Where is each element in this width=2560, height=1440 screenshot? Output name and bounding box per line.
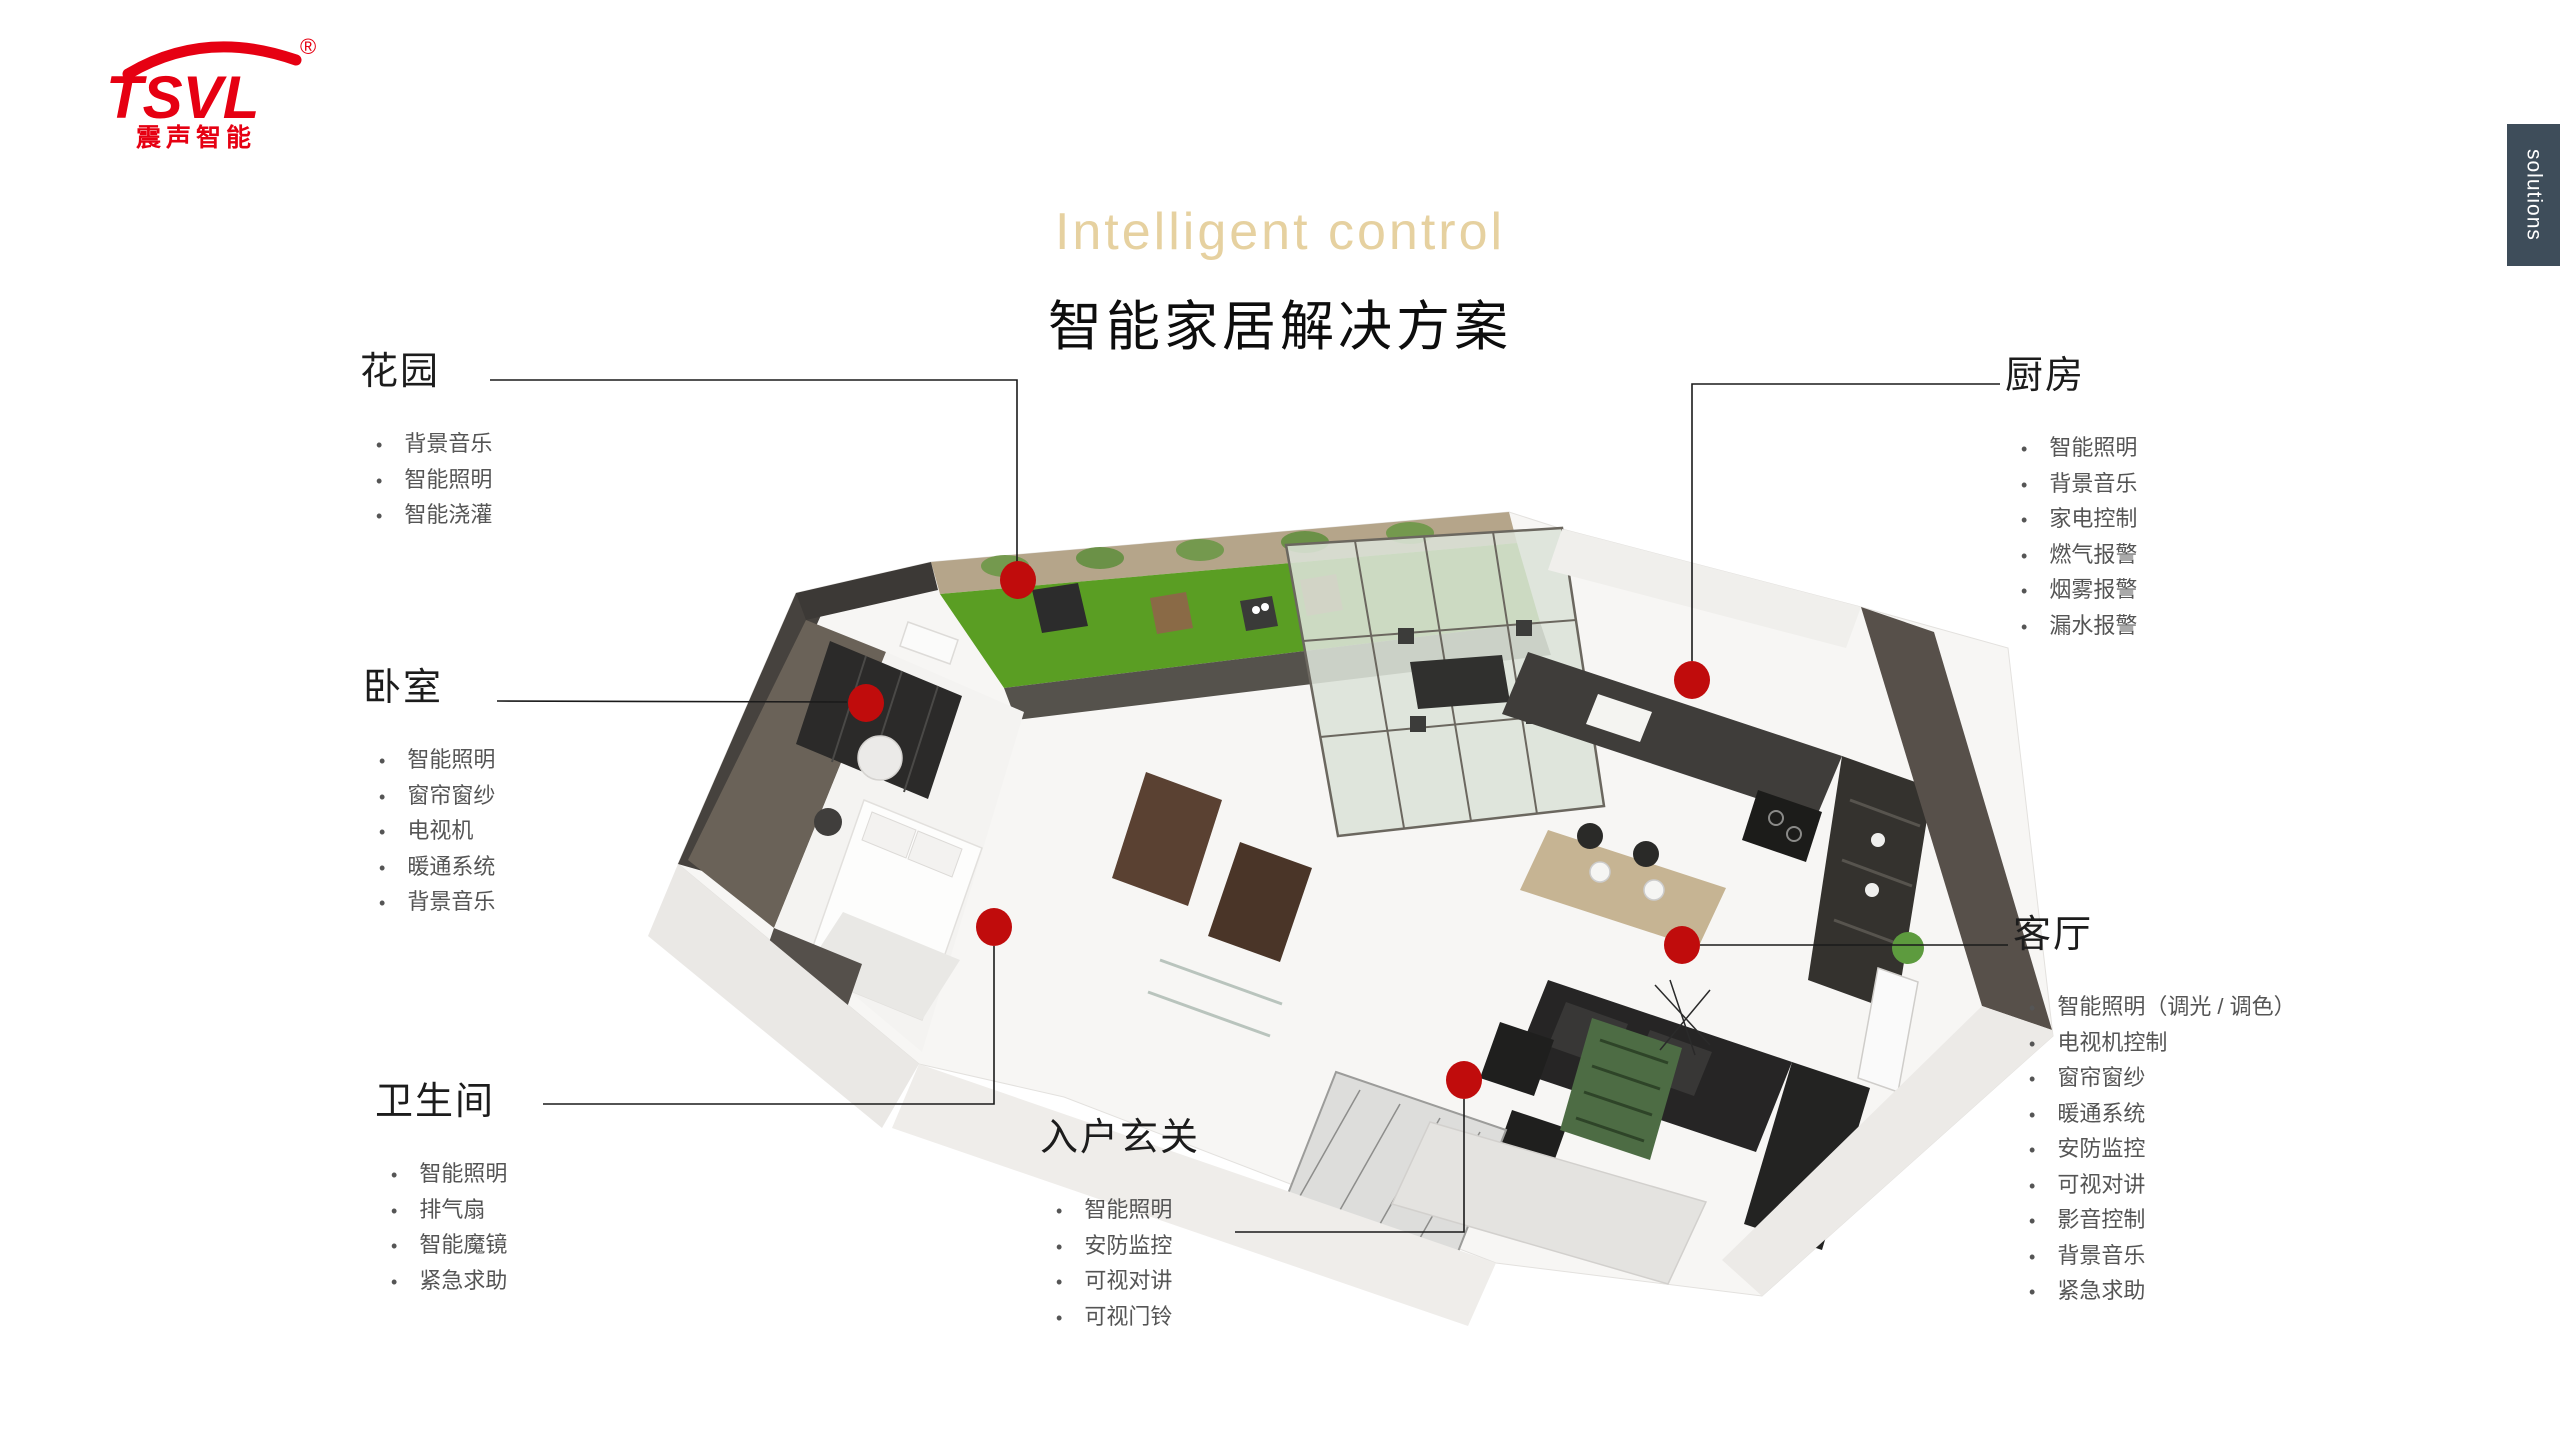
feature-label: 电视机控制 <box>2057 1026 2167 1060</box>
bullet-icon: • <box>2021 504 2027 538</box>
feature-label: 窗帘窗纱 <box>2057 1061 2145 1095</box>
section-bedroom: 卧室 •智能照明•窗帘窗纱•电视机•暖通系统•背景音乐 <box>363 665 495 921</box>
feature-item: •智能照明 <box>391 1157 507 1193</box>
bullet-icon: • <box>2021 433 2027 467</box>
bullet-icon: • <box>391 1159 397 1193</box>
bullet-icon: • <box>391 1266 397 1300</box>
bullet-icon: • <box>2021 469 2027 503</box>
feature-label: 背景音乐 <box>2057 1239 2145 1273</box>
feature-label: 电视机 <box>407 814 473 848</box>
section-garden-title: 花园 <box>360 349 492 395</box>
feature-label: 智能照明 <box>419 1157 507 1191</box>
feature-item: •紧急求助 <box>391 1264 507 1300</box>
bullet-icon: • <box>2029 1099 2035 1133</box>
bullet-icon: • <box>376 500 382 534</box>
feature-label: 智能照明 <box>407 743 495 777</box>
feature-item: •暖通系统 <box>379 850 495 886</box>
feature-label: 可视门铃 <box>1084 1300 1172 1334</box>
bullet-icon: • <box>1056 1266 1062 1300</box>
feature-label: 安防监控 <box>2057 1132 2145 1166</box>
feature-item: •智能魔镜 <box>391 1228 507 1264</box>
feature-label: 背景音乐 <box>404 427 492 461</box>
feature-item: •窗帘窗纱 <box>379 779 495 815</box>
feature-label: 安防监控 <box>1084 1229 1172 1263</box>
slide: { "logo": { "brand": "TSVL", "registered… <box>0 0 2560 1440</box>
feature-label: 暖通系统 <box>2057 1097 2145 1131</box>
feature-item: •背景音乐 <box>2029 1239 2296 1275</box>
bullet-icon: • <box>2029 1276 2035 1310</box>
section-entrance: 入户玄关 •智能照明•安防监控•可视对讲•可视门铃 <box>1040 1115 1200 1335</box>
section-kitchen: 厨房 •智能照明•背景音乐•家电控制•燃气报警•烟雾报警•漏水报警 <box>2005 353 2137 644</box>
bullet-icon: • <box>1056 1195 1062 1229</box>
feature-label: 燃气报警 <box>2049 538 2137 572</box>
feature-label: 背景音乐 <box>407 885 495 919</box>
section-entrance-list: •智能照明•安防监控•可视对讲•可视门铃 <box>1056 1193 1200 1335</box>
section-bedroom-list: •智能照明•窗帘窗纱•电视机•暖通系统•背景音乐 <box>379 743 495 921</box>
feature-item: •紧急求助 <box>2029 1274 2296 1310</box>
bullet-icon: • <box>2029 1170 2035 1204</box>
bullet-icon: • <box>2029 1241 2035 1275</box>
feature-item: •背景音乐 <box>376 427 492 463</box>
section-living: 客厅 •智能照明（调光 / 调色）•电视机控制•窗帘窗纱•暖通系统•安防监控•可… <box>2013 912 2296 1310</box>
feature-item: •电视机 <box>379 814 495 850</box>
feature-label: 窗帘窗纱 <box>407 779 495 813</box>
bullet-icon: • <box>1056 1302 1062 1336</box>
feature-label: 智能魔镜 <box>419 1228 507 1262</box>
section-garden: 花园 •背景音乐•智能照明•智能浇灌 <box>360 349 492 534</box>
feature-label: 紧急求助 <box>419 1264 507 1298</box>
section-entrance-title: 入户玄关 <box>1040 1115 1200 1161</box>
section-living-title: 客厅 <box>2013 912 2296 958</box>
feature-label: 漏水报警 <box>2049 609 2137 643</box>
bullet-icon: • <box>379 816 385 850</box>
section-bathroom-list: •智能照明•排气扇•智能魔镜•紧急求助 <box>391 1157 507 1299</box>
feature-item: •智能照明 <box>376 463 492 499</box>
section-bathroom-title: 卫生间 <box>375 1079 507 1125</box>
bullet-icon: • <box>391 1195 397 1229</box>
bullet-icon: • <box>1056 1231 1062 1265</box>
bullet-icon: • <box>2021 575 2027 609</box>
feature-label: 智能照明（调光 / 调色） <box>2057 990 2295 1024</box>
section-kitchen-list: •智能照明•背景音乐•家电控制•燃气报警•烟雾报警•漏水报警 <box>2021 431 2137 644</box>
bullet-icon: • <box>2029 1063 2035 1097</box>
bullet-icon: • <box>379 745 385 779</box>
feature-item: •可视门铃 <box>1056 1300 1200 1336</box>
feature-item: •安防监控 <box>1056 1229 1200 1265</box>
bullet-icon: • <box>376 465 382 499</box>
bullet-icon: • <box>2029 1134 2035 1168</box>
feature-label: 可视对讲 <box>1084 1264 1172 1298</box>
feature-label: 可视对讲 <box>2057 1168 2145 1202</box>
feature-item: •智能照明（调光 / 调色） <box>2029 990 2296 1026</box>
feature-label: 家电控制 <box>2049 502 2137 536</box>
feature-item: •可视对讲 <box>1056 1264 1200 1300</box>
section-bathroom: 卫生间 •智能照明•排气扇•智能魔镜•紧急求助 <box>375 1079 507 1299</box>
feature-item: •暖通系统 <box>2029 1097 2296 1133</box>
section-bedroom-title: 卧室 <box>363 665 495 711</box>
feature-item: •漏水报警 <box>2021 609 2137 645</box>
feature-item: •排气扇 <box>391 1193 507 1229</box>
bullet-icon: • <box>2021 611 2027 645</box>
feature-item: •智能照明 <box>2021 431 2137 467</box>
feature-label: 影音控制 <box>2057 1203 2145 1237</box>
bullet-icon: • <box>379 781 385 815</box>
feature-label: 烟雾报警 <box>2049 573 2137 607</box>
feature-item: •燃气报警 <box>2021 538 2137 574</box>
feature-label: 紧急求助 <box>2057 1274 2145 1308</box>
feature-item: •智能浇灌 <box>376 498 492 534</box>
feature-label: 排气扇 <box>419 1193 485 1227</box>
bullet-icon: • <box>376 429 382 463</box>
bullet-icon: • <box>391 1230 397 1264</box>
feature-item: •背景音乐 <box>379 885 495 921</box>
feature-item: •电视机控制 <box>2029 1026 2296 1062</box>
feature-item: •烟雾报警 <box>2021 573 2137 609</box>
feature-item: •背景音乐 <box>2021 467 2137 503</box>
section-kitchen-title: 厨房 <box>2005 353 2137 399</box>
feature-item: •可视对讲 <box>2029 1168 2296 1204</box>
feature-item: •安防监控 <box>2029 1132 2296 1168</box>
feature-label: 智能照明 <box>2049 431 2137 465</box>
feature-item: •智能照明 <box>1056 1193 1200 1229</box>
bullet-icon: • <box>2029 1205 2035 1239</box>
feature-label: 智能照明 <box>1084 1193 1172 1227</box>
feature-item: •窗帘窗纱 <box>2029 1061 2296 1097</box>
feature-label: 智能照明 <box>404 463 492 497</box>
feature-label: 背景音乐 <box>2049 467 2137 501</box>
bullet-icon: • <box>379 887 385 921</box>
feature-label: 智能浇灌 <box>404 498 492 532</box>
feature-item: •智能照明 <box>379 743 495 779</box>
bullet-icon: • <box>2029 1028 2035 1062</box>
section-garden-list: •背景音乐•智能照明•智能浇灌 <box>376 427 492 534</box>
feature-item: •家电控制 <box>2021 502 2137 538</box>
feature-item: •影音控制 <box>2029 1203 2296 1239</box>
section-living-list: •智能照明（调光 / 调色）•电视机控制•窗帘窗纱•暖通系统•安防监控•可视对讲… <box>2029 990 2296 1310</box>
bullet-icon: • <box>2029 992 2035 1026</box>
bullet-icon: • <box>379 852 385 886</box>
bullet-icon: • <box>2021 540 2027 574</box>
feature-label: 暖通系统 <box>407 850 495 884</box>
